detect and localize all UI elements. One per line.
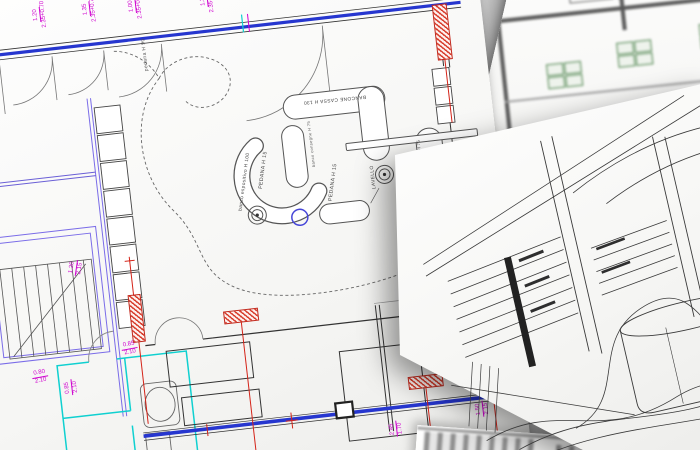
sketch-counter xyxy=(617,286,700,415)
office-room xyxy=(564,0,613,4)
dimension-label: 0.85 2.10 xyxy=(120,340,138,357)
dimension-label: 0.80 2.10 xyxy=(31,368,49,385)
sketch-posts xyxy=(540,93,700,356)
sketch-left-shelves xyxy=(444,213,692,381)
dimension-label: 1.20 2.35+0.70 xyxy=(31,0,48,30)
blueprint-collage: 1.20 2.35+0.70 1.35 2.35+0.70 1.00 2.35+… xyxy=(0,0,700,450)
perspective-sketch-sheet xyxy=(385,60,700,450)
dimension-height: 2.10 xyxy=(71,380,79,394)
bathroom-walls xyxy=(57,351,198,450)
sketch-hatching xyxy=(455,356,513,438)
dimension-label: 1.35 2.35+0.70 xyxy=(81,0,98,24)
top-wall xyxy=(0,0,461,69)
dimension-label: 1.00 2.35+0.70 xyxy=(127,0,144,21)
dimension-label: 1.20 2.15 xyxy=(68,259,84,277)
office-wall xyxy=(496,0,700,23)
dimension-label: 0.85 2.10 xyxy=(64,379,80,396)
sketch-linework xyxy=(385,33,700,450)
sketch-ceiling xyxy=(399,65,700,276)
sketch-floor xyxy=(443,253,700,450)
stairs xyxy=(0,259,101,359)
dimension-label: 1.35 2.35+0.70 xyxy=(198,0,215,15)
office-wall xyxy=(613,0,627,30)
